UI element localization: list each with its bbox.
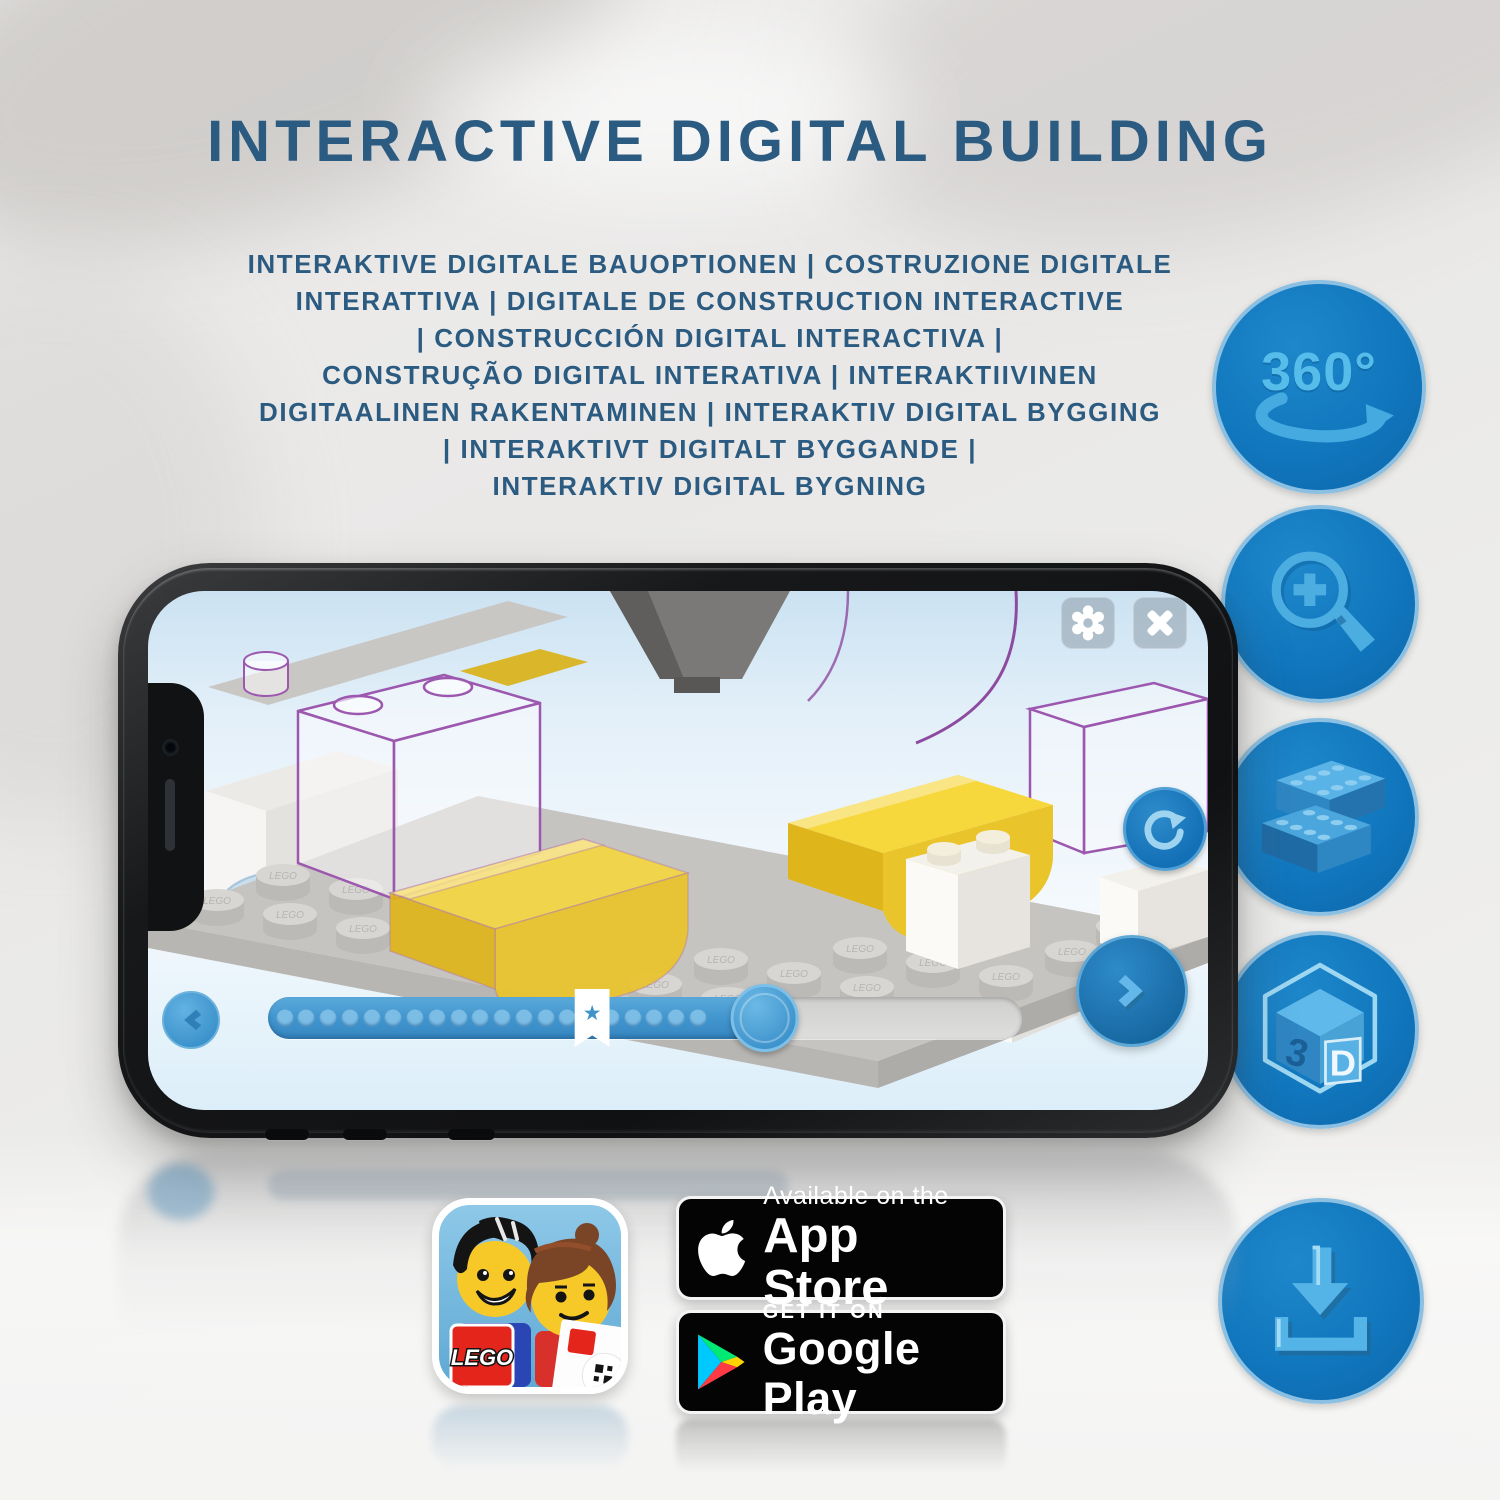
building-bricks-icon [1221, 718, 1419, 916]
progress-dot [276, 1010, 293, 1027]
front-camera [164, 741, 177, 754]
3d-view-icon: 3 D [1221, 931, 1419, 1129]
subtitle-line: INTERAKTIV DIGITAL BYGNING [90, 468, 1330, 505]
subtitle-line: DIGITAALINEN RAKENTAMINEN | INTERAKTIV D… [90, 394, 1330, 431]
progress-thumb[interactable] [730, 984, 798, 1052]
subtitle-line: | CONSTRUCCIÓN DIGITAL INTERACTIVA | [90, 320, 1330, 357]
progress-dot [646, 1010, 663, 1027]
chevron-left-icon [174, 1003, 208, 1037]
zoom-in-icon [1221, 505, 1419, 703]
rotation-arrow-icon [1244, 391, 1394, 449]
progress-dot [515, 1010, 532, 1027]
progress-dot [689, 1010, 706, 1027]
progress-dot [320, 1010, 337, 1027]
phone-volume-button [343, 1129, 387, 1140]
progress-dot [494, 1010, 511, 1027]
progress-dot [363, 1010, 380, 1027]
close-button[interactable] [1133, 597, 1187, 649]
poster: INTERACTIVE DIGITAL BUILDING INTERAKTIVE… [0, 0, 1500, 1500]
settings-button[interactable] [1061, 597, 1115, 649]
phone-power-button [448, 1129, 495, 1140]
lego-logo: LEGO [451, 1345, 513, 1370]
progress-dot [428, 1010, 445, 1027]
phone-volume-button [265, 1129, 309, 1140]
progress-dot [472, 1010, 489, 1027]
google-play-icon [697, 1329, 746, 1395]
apple-icon [697, 1216, 746, 1280]
3d-cube-glyph: 3 D [1256, 961, 1384, 1099]
subtitle-line: | INTERAKTIVT DIGITALT BYGGANDE | [90, 431, 1330, 468]
lego-app-icon[interactable]: LEGO [432, 1198, 628, 1394]
rotate-view-button[interactable] [1123, 787, 1207, 871]
progress-dot [341, 1010, 358, 1027]
google-play-tagline: GET IT ON [763, 1300, 985, 1324]
phone-mockup: LEGO LEGO [118, 563, 1238, 1138]
app-store-tagline: Available on the [763, 1183, 985, 1210]
build-progress-slider[interactable]: ★ [268, 997, 1022, 1039]
subtitle-line: CONSTRUÇÃO DIGITAL INTERATIVA | INTERAKT… [90, 357, 1330, 394]
cube-d-label: D [1330, 1043, 1356, 1084]
progress-dot [668, 1010, 685, 1027]
minifigures-illustration: LEGO [439, 1205, 621, 1387]
gear-icon [1069, 604, 1107, 642]
app-icon-reflection [432, 1406, 628, 1470]
earpiece-speaker [165, 779, 175, 851]
badge-reflection [676, 1420, 1006, 1472]
download-icon [1218, 1198, 1424, 1404]
google-play-badge[interactable]: GET IT ON Google Play [676, 1310, 1006, 1414]
page-title: INTERACTIVE DIGITAL BUILDING [0, 108, 1480, 175]
progress-dot [385, 1010, 402, 1027]
previous-step-button[interactable] [162, 991, 220, 1049]
progress-dot [450, 1010, 467, 1027]
subtitle-line: INTERATTIVA | DIGITALE DE CONSTRUCTION I… [90, 283, 1330, 320]
360-rotation-icon: 360° [1212, 280, 1426, 494]
download-glyph [1260, 1240, 1382, 1362]
app-screen: LEGO LEGO [148, 591, 1208, 1110]
progress-dot [624, 1010, 641, 1027]
progress-dot [537, 1010, 554, 1027]
google-play-label: Google Play [763, 1324, 985, 1424]
app-store-badge[interactable]: Available on the App Store [676, 1196, 1006, 1300]
close-icon [1141, 604, 1179, 642]
button-reflection [148, 1164, 214, 1220]
progress-dot [559, 1010, 576, 1027]
bricks-glyph [1253, 751, 1387, 883]
rotate-icon [1142, 806, 1188, 852]
subtitle-line: INTERAKTIVE DIGITALE BAUOPTIONEN | COSTR… [90, 246, 1330, 283]
magnifier-glyph [1259, 543, 1381, 665]
progress-dot [407, 1010, 424, 1027]
chevron-right-icon [1097, 956, 1167, 1026]
progress-dot [298, 1010, 315, 1027]
app-store-label: App Store [763, 1210, 985, 1314]
phone-notch [148, 683, 204, 931]
subtitle-block: INTERAKTIVE DIGITALE BAUOPTIONEN | COSTR… [90, 246, 1330, 505]
next-step-button[interactable] [1076, 935, 1188, 1047]
